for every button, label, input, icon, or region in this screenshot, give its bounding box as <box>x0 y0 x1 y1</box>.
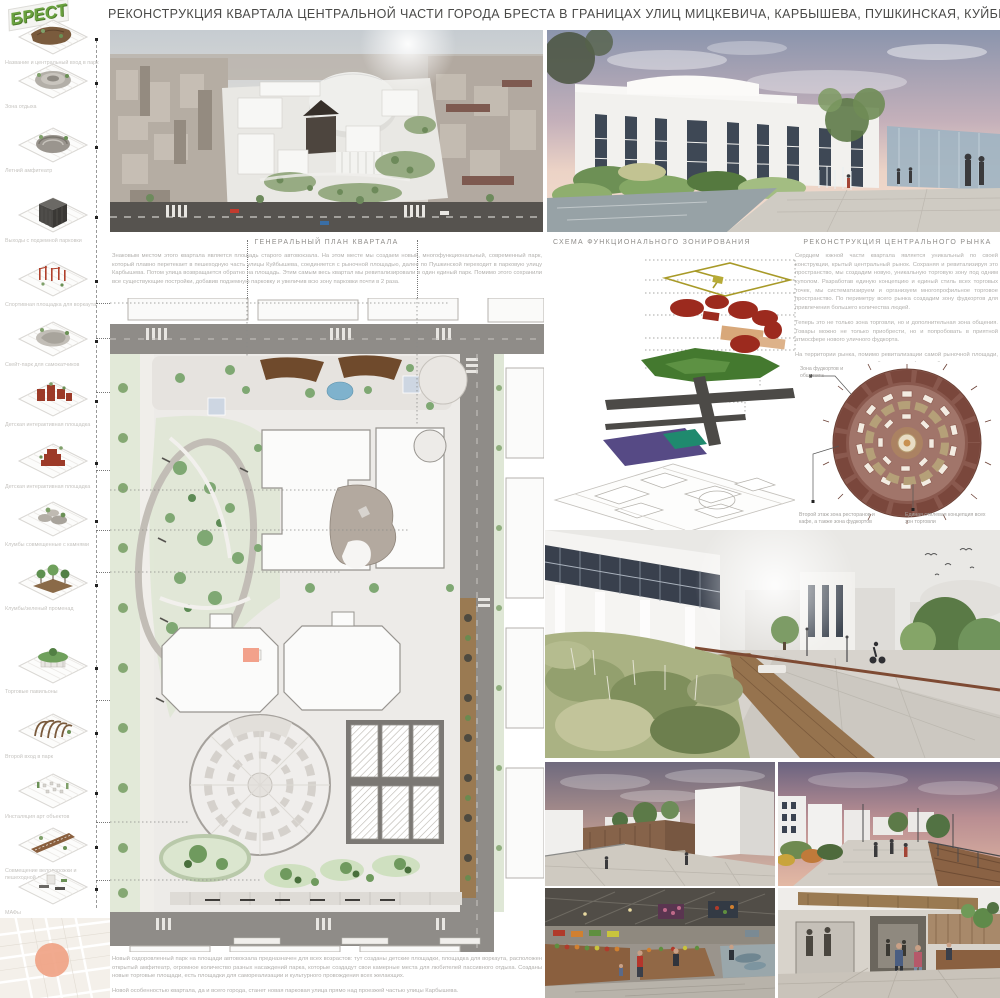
zoning-header: СХЕМА ФУНКЦИОНАЛЬНОГО ЗОНИРОВАНИЯ <box>553 239 751 246</box>
sidebar-item-label: Детская интерактивная площадка <box>0 484 106 491</box>
connector-node <box>95 38 98 41</box>
market-label-foodcourt: Зона фудкортов и общепита <box>800 366 862 380</box>
location-map <box>0 918 110 998</box>
sidebar-item-label: Летний амфитеатр <box>0 168 106 175</box>
connector-node <box>95 667 98 670</box>
connector-node <box>95 146 98 149</box>
master-plan <box>110 298 544 952</box>
green-promenade-icon <box>17 562 89 606</box>
sidebar-item: Спортивная площадка для воркаута <box>0 258 106 309</box>
sidebar-item-label: Детская интерактивная площадка <box>0 422 106 429</box>
connector-node <box>95 520 98 523</box>
connector-node <box>95 888 98 891</box>
sidebar-item: Скейт-парк для самокатчиков <box>0 318 106 369</box>
sidebar-item: Инсталяция арт объектов <box>0 770 106 821</box>
market-circular-plan <box>795 362 1000 524</box>
skatepark-icon <box>17 318 89 362</box>
street-furniture-icon <box>17 866 89 910</box>
sidebar-item-label: Скейт-парк для самокатчиков <box>0 362 106 369</box>
foodcourt-interior-render <box>778 888 1000 998</box>
sidebar-item: Летний амфитеатр <box>0 124 106 175</box>
market-paragraph: Сердцем южной части квартала является ун… <box>795 252 998 313</box>
connector-node <box>95 280 98 283</box>
park-entrance-icon <box>17 16 89 60</box>
market-header: РЕКОНСТРУКЦИЯ ЦЕНТРАЛЬНОГО РЫНКА <box>795 239 1000 246</box>
market-paragraph: Теперь это не только зона торговли, но и… <box>795 319 998 345</box>
rest-zone-icon <box>17 60 89 104</box>
footer-text: Новый оздоровленный парк на площади авто… <box>112 955 542 998</box>
workout-area-icon <box>17 258 89 302</box>
sidebar-item-label: Спортивная площадка для воркаута <box>0 302 106 309</box>
market-facade-photo <box>547 30 1000 232</box>
kids-playground-icon <box>17 378 89 422</box>
sidebar-item: Клумбы совмещенные с камнями <box>0 498 106 549</box>
promenade-render <box>778 762 1000 886</box>
market-label-second-floor: Второй этаж зона ресторанов и кафе, а та… <box>799 512 881 526</box>
connector-node <box>95 340 98 343</box>
art-objects-icon <box>17 770 89 814</box>
connector-node <box>95 216 98 219</box>
connector-node <box>95 400 98 403</box>
bike-path-icon <box>17 824 89 868</box>
sidebar-item: Детская интерактивная площадка <box>0 378 106 429</box>
sidebar-item-label: МАФы <box>0 910 106 917</box>
sidebar-item: Клумбы/зеленый променад <box>0 562 106 613</box>
second-entrance-icon <box>17 710 89 754</box>
sidebar-item: Торговые павильоны <box>0 645 106 696</box>
footer-paragraph: Новый оздоровленный парк на площади авто… <box>112 955 542 981</box>
connector-node <box>95 732 98 735</box>
sunken-market-render <box>545 762 775 886</box>
sidebar-item: Зона отдыха <box>0 60 106 111</box>
trade-pavilion-icon <box>17 645 89 689</box>
amphitheater-icon <box>17 124 89 168</box>
sidebar-item-label: Выходы с подземной парковки <box>0 238 106 245</box>
sidebar-item: Детская интерактивная площадка <box>0 440 106 491</box>
parking-exit-icon <box>17 194 89 238</box>
sidebar-item-label: Клумбы совмещенные с камнями <box>0 542 106 549</box>
connector-node <box>95 584 98 587</box>
sidebar-item-label: Зона отдыха <box>0 104 106 111</box>
sidebar-item-label: Торговые павильоны <box>0 689 106 696</box>
zoning-diagram <box>545 248 800 538</box>
kids-playground-2-icon <box>17 440 89 484</box>
connector-node <box>95 792 98 795</box>
connector-node <box>95 846 98 849</box>
market-interior-render <box>545 888 775 998</box>
sidebar-item: Второй вход в парк <box>0 710 106 761</box>
general-plan-intro: Знаковым местом этого квартала является … <box>112 252 542 287</box>
sidebar-item-label: Клумбы/зеленый променад <box>0 606 106 613</box>
sidebar-item-label: Инсталяция арт объектов <box>0 814 106 821</box>
sidebar-item: Выходы с подземной парковки <box>0 194 106 245</box>
connector-node <box>95 462 98 465</box>
aerial-photo <box>110 30 543 232</box>
page-title: РЕКОНСТРУКЦИЯ КВАРТАЛА ЦЕНТРАЛЬНОЙ ЧАСТИ… <box>108 7 1000 21</box>
connector-node <box>95 82 98 85</box>
market-label-style: Единая стилевая концепция всех зон торго… <box>905 512 987 526</box>
map-highlight-circle <box>35 943 69 977</box>
general-plan-header: ГЕНЕРАЛЬНЫЙ ПЛАН КВАРТАЛА <box>110 239 543 246</box>
park-street-render <box>545 530 1000 758</box>
footer-paragraph: Новой особенностью квартала, да и всего … <box>112 987 542 996</box>
sidebar-item-label: Второй вход в парк <box>0 754 106 761</box>
presentation-board: БРЕСТ РЕКОНСТРУКЦИЯ КВАРТАЛА ЦЕНТРАЛЬНОЙ… <box>0 0 1000 998</box>
sidebar-item: МАФы <box>0 866 106 917</box>
flowerbed-stones-icon <box>17 498 89 542</box>
